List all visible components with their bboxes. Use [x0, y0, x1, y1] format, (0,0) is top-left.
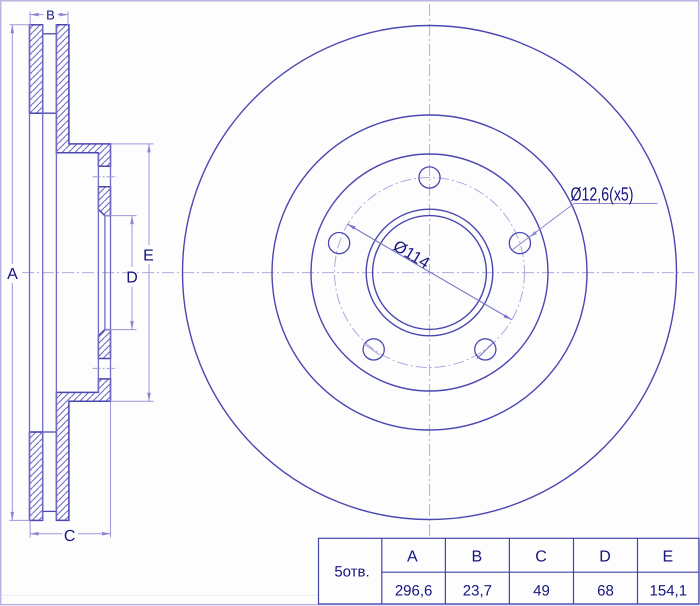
svg-text:A: A — [407, 548, 418, 565]
svg-text:68: 68 — [597, 583, 614, 600]
svg-text:E: E — [662, 548, 673, 565]
svg-text:C: C — [64, 528, 76, 545]
svg-text:A: A — [7, 266, 18, 283]
svg-text:23,7: 23,7 — [463, 583, 492, 600]
svg-text:49: 49 — [533, 583, 550, 600]
svg-text:B: B — [471, 548, 482, 565]
svg-text:E: E — [143, 248, 154, 265]
svg-text:154,1: 154,1 — [650, 583, 688, 600]
svg-text:Ø12,6(x5): Ø12,6(x5) — [571, 185, 634, 206]
svg-text:C: C — [535, 548, 547, 565]
svg-text:296,6: 296,6 — [395, 583, 433, 600]
svg-text:5отв.: 5отв. — [334, 564, 369, 581]
svg-text:D: D — [599, 548, 611, 565]
svg-text:B: B — [46, 7, 55, 22]
svg-text:D: D — [126, 270, 138, 287]
